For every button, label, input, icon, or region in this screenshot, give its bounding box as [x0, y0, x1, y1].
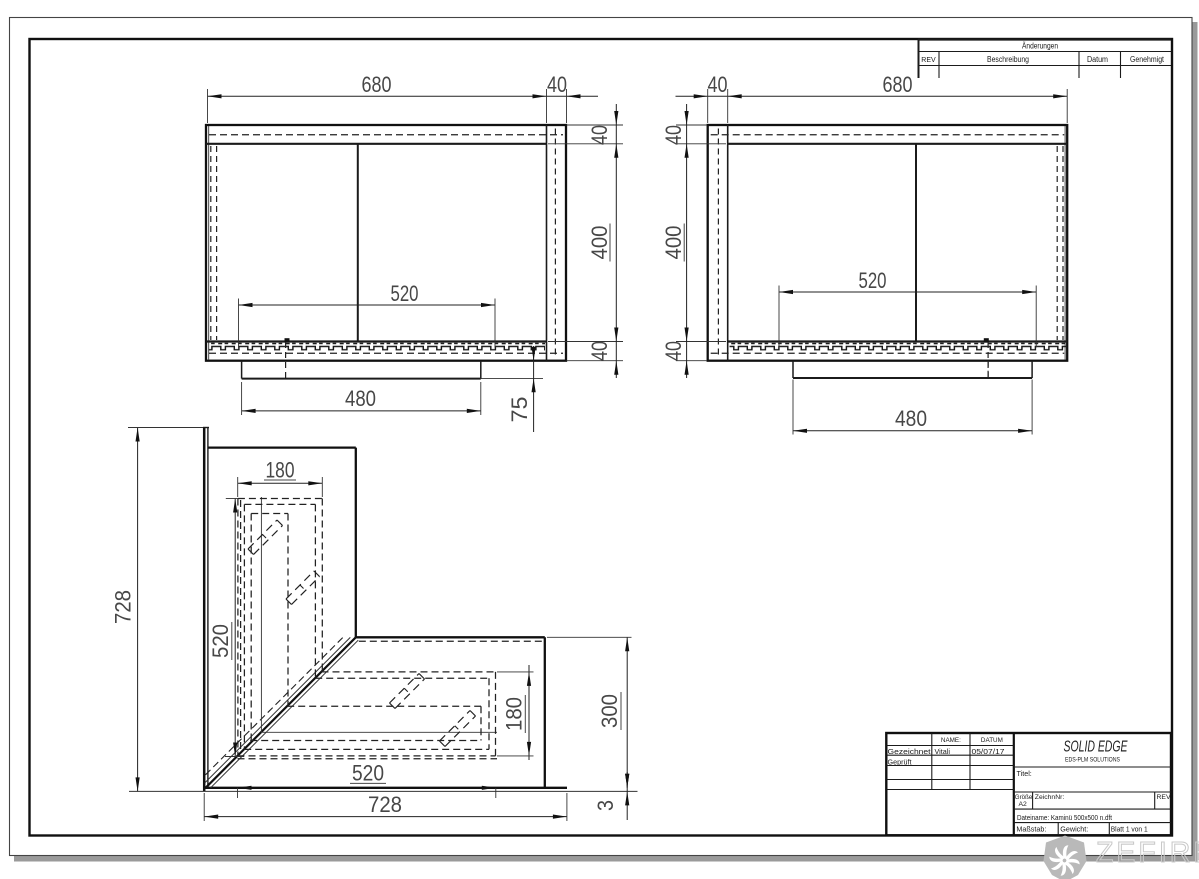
svg-text:Größe: Größe — [1015, 794, 1033, 801]
svg-text:520: 520 — [391, 281, 419, 306]
svg-text:DATUM: DATUM — [981, 737, 1003, 744]
svg-text:40: 40 — [587, 341, 612, 361]
svg-text:SOLID EDGE: SOLID EDGE — [1064, 739, 1128, 756]
svg-text:EDS-PLM SOLUTIONS: EDS-PLM SOLUTIONS — [1065, 757, 1120, 764]
svg-text:520: 520 — [859, 268, 887, 293]
svg-text:REV.: REV. — [1157, 794, 1172, 801]
svg-text:40: 40 — [587, 125, 612, 145]
svg-text:Änderungen: Änderungen — [1022, 42, 1058, 51]
svg-text:Titel:: Titel: — [1017, 769, 1032, 778]
svg-text:A2: A2 — [1019, 801, 1028, 808]
svg-text:ZeichnNr:: ZeichnNr: — [1035, 794, 1065, 801]
svg-text:REV: REV — [921, 57, 936, 64]
svg-text:520: 520 — [208, 624, 233, 658]
svg-text:75: 75 — [507, 397, 532, 423]
svg-text:Gewicht:: Gewicht: — [1060, 824, 1088, 833]
svg-text:Dateiname: Kaminü 500x500 n.df: Dateiname: Kaminü 500x500 n.dft — [1017, 813, 1112, 822]
svg-text:400: 400 — [587, 226, 612, 260]
svg-text:40: 40 — [661, 125, 686, 145]
svg-text:680: 680 — [883, 72, 913, 97]
svg-text:180: 180 — [266, 458, 295, 483]
svg-text:Vitali: Vitali — [935, 747, 951, 756]
svg-text:480: 480 — [345, 386, 376, 411]
svg-text:ZEFIRE: ZEFIRE — [1096, 837, 1199, 869]
svg-text:05/07/17: 05/07/17 — [972, 747, 1005, 756]
svg-text:680: 680 — [362, 72, 392, 97]
svg-text:40: 40 — [708, 72, 728, 97]
svg-text:728: 728 — [111, 590, 136, 624]
svg-text:480: 480 — [895, 406, 927, 431]
svg-text:180: 180 — [502, 697, 527, 731]
svg-text:Gezeichnet: Gezeichnet — [888, 747, 931, 756]
svg-text:Genehmigt: Genehmigt — [1130, 55, 1165, 64]
svg-text:Datum: Datum — [1087, 55, 1108, 64]
svg-text:Blatt 1 von 1: Blatt 1 von 1 — [1111, 824, 1148, 833]
svg-text:Maßstab:: Maßstab: — [1016, 824, 1046, 833]
svg-text:400: 400 — [661, 226, 686, 260]
svg-text:Beschreibung: Beschreibung — [987, 55, 1029, 64]
svg-text:3: 3 — [593, 800, 618, 811]
svg-text:300: 300 — [597, 694, 622, 728]
svg-text:40: 40 — [661, 341, 686, 361]
svg-text:NAME:: NAME: — [941, 737, 961, 744]
svg-text:520: 520 — [352, 761, 384, 786]
svg-text:Geprüft: Geprüft — [888, 757, 912, 766]
svg-text:728: 728 — [368, 792, 402, 817]
svg-text:40: 40 — [547, 72, 567, 97]
